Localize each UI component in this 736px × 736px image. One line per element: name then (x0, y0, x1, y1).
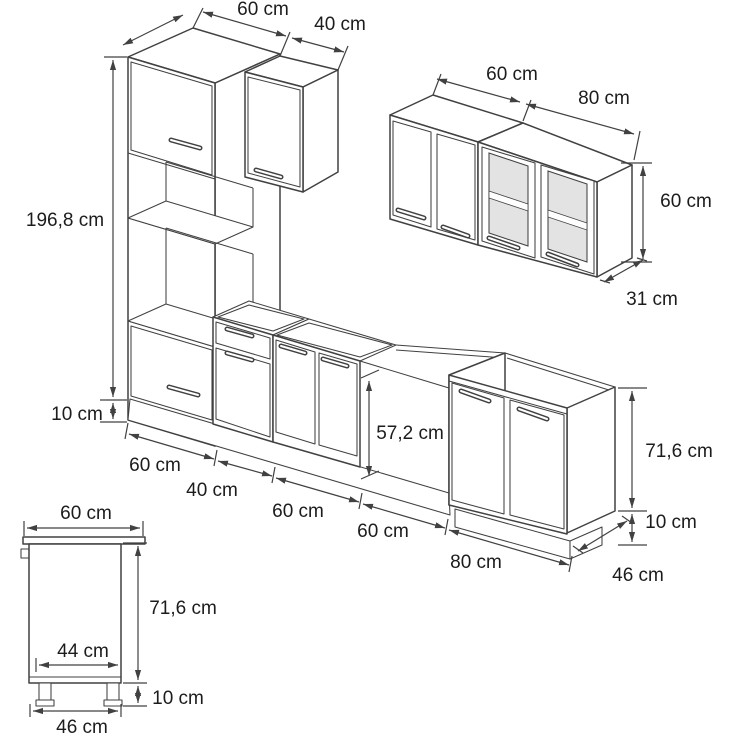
wall-unit-40-width-label: 40 cm (314, 14, 366, 35)
wall-unit-group-drawing (390, 95, 632, 277)
wall-unit-depth-label: 31 cm (626, 289, 678, 310)
wall-unit-80-width-label: 80 cm (578, 88, 630, 109)
wall-unit-40-drawing (245, 56, 338, 192)
wall-unit-height-label: 60 cm (660, 191, 712, 212)
base-depth-label: 46 cm (612, 565, 664, 586)
side-view-inner-label: 44 cm (57, 641, 109, 662)
wall-unit-60-width-label: 60 cm (486, 64, 538, 85)
base-unit-60-door-right (319, 353, 357, 456)
wall-unit-40-width-arrow (292, 38, 344, 52)
wall-unit-80-glass-door-left (482, 147, 535, 258)
run-width-label-1: 60 cm (129, 455, 181, 476)
base-unit-80-door-left (452, 383, 504, 514)
base-plinth-label: 10 cm (645, 512, 697, 533)
side-view-height-label: 71,6 cm (149, 598, 217, 619)
tall-unit-width-label: 60 cm (237, 0, 289, 20)
diagram-canvas: 60 cm 40 cm 196,8 cm 10 cm 60 cm 80 cm 6… (0, 0, 736, 736)
side-view-wall-rail (21, 549, 29, 558)
tall-unit-height-label: 196,8 cm (26, 210, 104, 231)
wall-unit-80-side-face (597, 165, 632, 277)
base-unit-80 (449, 353, 615, 559)
base-unit-80-side-face (567, 387, 615, 533)
wall-unit-60-door-right (437, 134, 475, 240)
base-height-label: 71,6 cm (645, 441, 713, 462)
side-view-legs (36, 683, 122, 706)
tall-unit-plinth-label: 10 cm (51, 404, 103, 425)
dimension-diagram: 60 cm 40 cm 196,8 cm 10 cm 60 cm 80 cm 6… (0, 0, 736, 736)
wall-unit-40-side-face (303, 70, 338, 192)
side-view-top-label: 60 cm (60, 503, 112, 524)
run-width-label-4: 60 cm (357, 521, 409, 542)
run-width-label-2: 40 cm (186, 480, 238, 501)
base-unit-60 (273, 319, 396, 467)
run-width-label-3: 60 cm (272, 501, 324, 522)
wall-unit-80-glass-door-right (541, 165, 594, 274)
side-view-plinth-label: 10 cm (152, 688, 204, 709)
side-view-carcass (29, 544, 121, 683)
base-unit-60-door-left (276, 340, 315, 444)
niche-height-label: 57,2 cm (376, 423, 444, 444)
base-unit-80-door-right (510, 400, 564, 529)
run-width-label-5: 80 cm (450, 552, 502, 573)
side-view-drawing (21, 537, 145, 706)
side-view-bottom-label: 46 cm (56, 717, 108, 736)
